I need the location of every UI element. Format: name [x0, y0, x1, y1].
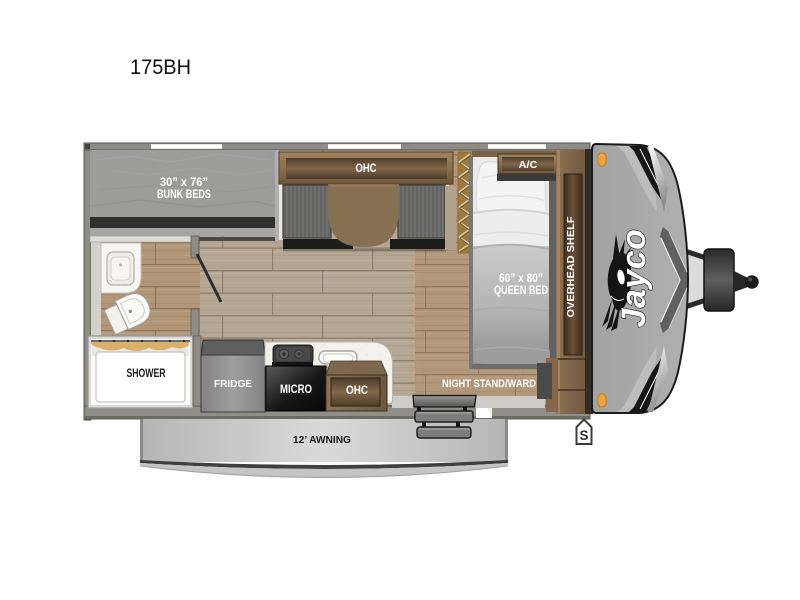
- svg-text:NIGHT STAND/WARD: NIGHT STAND/WARD: [442, 378, 536, 390]
- svg-text:12’ AWNING: 12’ AWNING: [293, 435, 351, 446]
- svg-text:S: S: [579, 428, 588, 443]
- svg-text:OVERHEAD SHELF: OVERHEAD SHELF: [565, 216, 577, 318]
- svg-text:QUEEN BED: QUEEN BED: [494, 285, 548, 297]
- svg-text:MICRO: MICRO: [280, 384, 312, 396]
- svg-text:OHC: OHC: [346, 385, 368, 397]
- svg-text:175BH: 175BH: [130, 56, 191, 79]
- svg-text:OHC: OHC: [356, 163, 377, 175]
- svg-text:30” x 76”: 30” x 76”: [160, 177, 208, 189]
- svg-text:FRIDGE: FRIDGE: [214, 378, 252, 390]
- svg-text:A/C: A/C: [519, 159, 538, 171]
- svg-text:SHOWER: SHOWER: [127, 368, 167, 380]
- svg-text:Jayco: Jayco: [615, 229, 653, 328]
- svg-text:60” x 80”: 60” x 80”: [499, 273, 543, 285]
- svg-text:BUNK BEDS: BUNK BEDS: [157, 189, 211, 201]
